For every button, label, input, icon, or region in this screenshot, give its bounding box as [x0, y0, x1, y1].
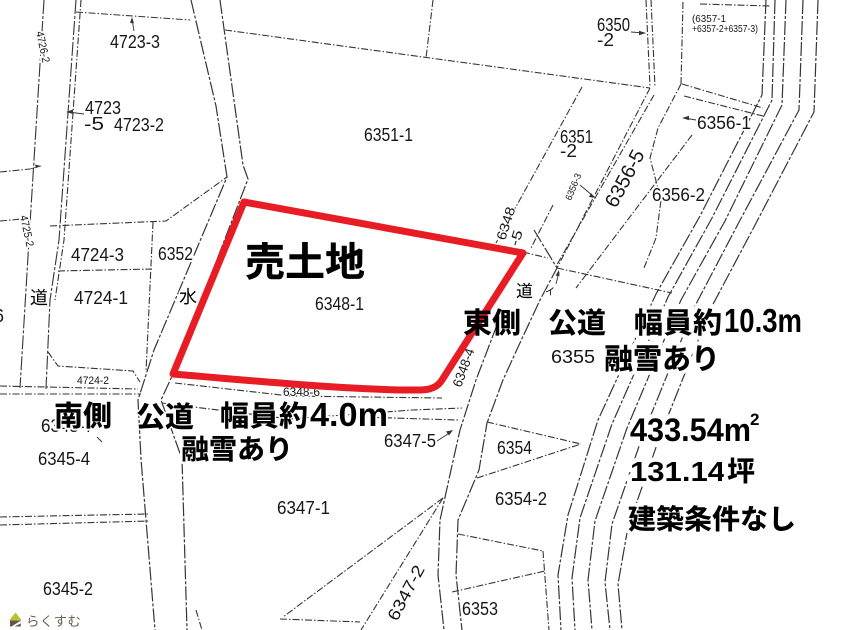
svg-text:4.0m: 4.0m: [310, 396, 388, 433]
svg-text:2: 2: [750, 410, 759, 429]
svg-text:131.14: 131.14: [630, 456, 725, 487]
svg-text:433.54m: 433.54m: [630, 412, 751, 448]
svg-text:10.3m: 10.3m: [724, 302, 802, 339]
